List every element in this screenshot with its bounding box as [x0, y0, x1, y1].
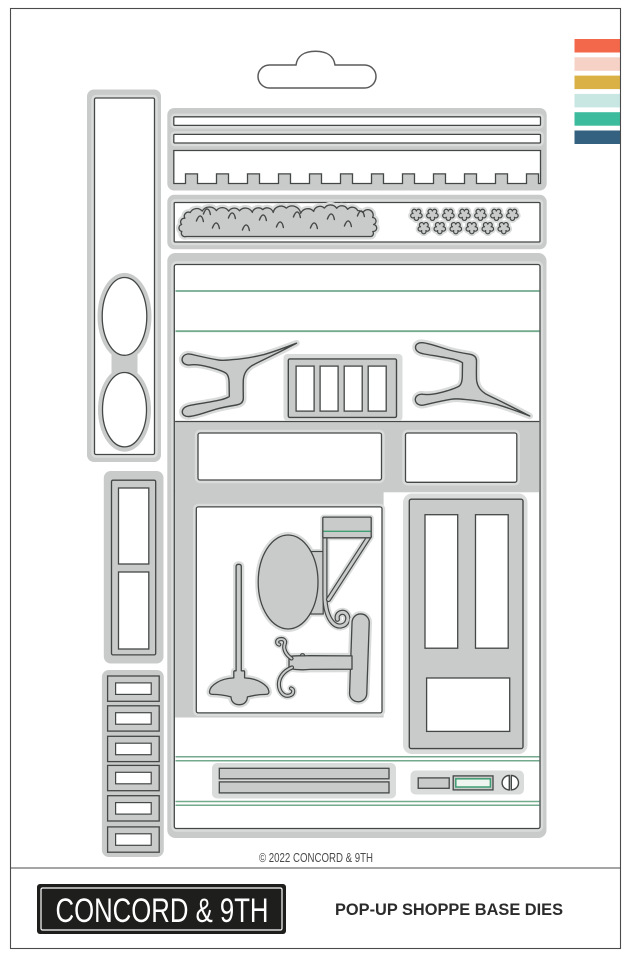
svg-text:POP-UP SHOPPE BASE DIES: POP-UP SHOPPE BASE DIES [335, 900, 563, 919]
svg-text:© 2022 CONCORD & 9TH: © 2022 CONCORD & 9TH [259, 851, 373, 865]
svg-text:CONCORD & 9TH: CONCORD & 9TH [56, 892, 269, 930]
